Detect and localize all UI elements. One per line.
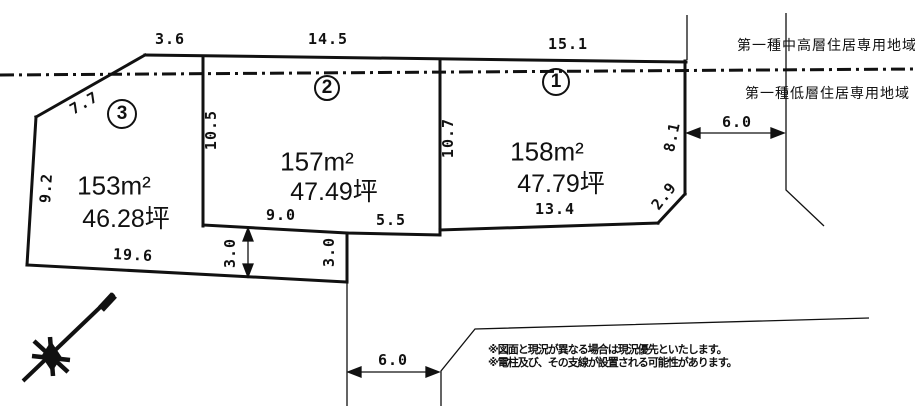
- dim-strip-right: 3.0: [320, 237, 338, 267]
- dim-plot3-left: 9.2: [36, 172, 56, 203]
- plot1-area-tsubo: 47.79坪: [517, 164, 605, 200]
- plot3-area-tsubo: 46.28坪: [82, 199, 170, 235]
- plot1-bottom-edge: [440, 223, 658, 230]
- zoning-label-upper: 第一種中高層住居専用地域: [737, 35, 915, 55]
- plot3-left-edge: [27, 117, 36, 265]
- plot2-area-tsubo: 47.49坪: [290, 172, 378, 208]
- dim-arrowhead-right-icon: [426, 367, 439, 377]
- plot3-number: 3: [117, 103, 128, 125]
- dim-arrowhead-right-icon: [771, 128, 784, 138]
- north-needle-tip: [101, 295, 114, 309]
- zoning-label-lower: 第一種低層住居専用地域: [745, 83, 910, 103]
- north-arrow-icon: [23, 294, 114, 381]
- dim-plot1-bottom: 13.4: [535, 200, 575, 218]
- dim-plot2-bottom-left: 9.0: [266, 206, 296, 224]
- dim-plot3-bottom: 19.6: [112, 245, 153, 265]
- plot1-number: 1: [551, 71, 562, 93]
- dim-plot3-top: 3.6: [155, 30, 185, 48]
- dim-plot1-top: 15.1: [548, 35, 588, 53]
- plot2-number-badge: 2: [314, 75, 340, 101]
- plot-top-edge: [145, 55, 686, 62]
- dim-road-bottom: 6.0: [378, 351, 408, 369]
- dim-strip-left: 3.0: [221, 238, 239, 268]
- dim-arrowhead-down-icon: [243, 264, 253, 277]
- dim-arrowhead-left-icon: [687, 128, 700, 138]
- dim-plot2-left: 10.5: [202, 110, 220, 150]
- plot2-number: 2: [322, 77, 333, 99]
- road-centerline: [0, 69, 915, 75]
- dim-plot2-top: 14.5: [308, 30, 348, 48]
- plot3-bottom-edge: [27, 265, 347, 282]
- plot3-number-badge: 3: [107, 99, 137, 129]
- dim-arrowhead-up-icon: [243, 228, 253, 241]
- dim-plot2-bottom-right: 5.5: [376, 211, 406, 229]
- plot1-number-badge: 1: [542, 68, 570, 96]
- plot1-area-m2: 158m²: [510, 137, 584, 168]
- plot3-area-m2: 153m²: [77, 171, 151, 202]
- lot-layout-diagram: 1 2 3 158m² 47.79坪 157m² 47.49坪 153m² 46…: [0, 0, 915, 406]
- dim-arrowhead-left-icon: [348, 367, 361, 377]
- dim-road-upper-right: 6.0: [722, 113, 752, 131]
- footnote-line1: ※図面と現況が異なる場合は現況優先といたします。: [488, 344, 727, 357]
- dim-plot1-left: 10.7: [439, 118, 457, 158]
- footnote-line2: ※電柱及び、その支線が設置される可能性があります。: [488, 357, 737, 370]
